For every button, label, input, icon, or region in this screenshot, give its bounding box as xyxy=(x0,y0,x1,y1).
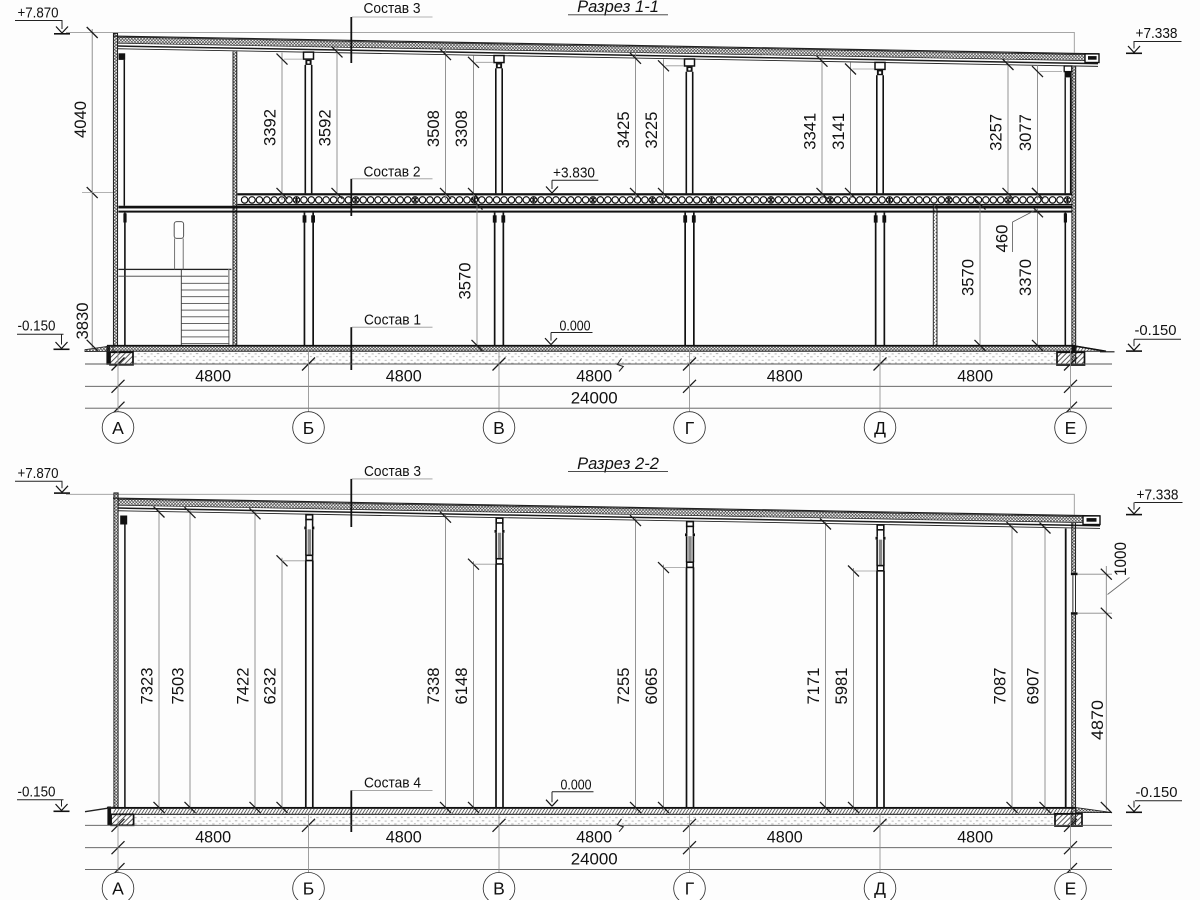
svg-text:4800: 4800 xyxy=(576,366,612,385)
svg-text:4800: 4800 xyxy=(957,827,993,846)
svg-text:Состав 3: Состав 3 xyxy=(364,0,421,17)
svg-text:7503: 7503 xyxy=(168,668,187,705)
svg-text:4800: 4800 xyxy=(195,827,231,846)
svg-text:7171: 7171 xyxy=(804,668,823,705)
svg-text:Е: Е xyxy=(1065,879,1077,899)
svg-text:4800: 4800 xyxy=(767,366,803,385)
svg-text:3077: 3077 xyxy=(1016,114,1035,151)
svg-text:Состав 2: Состав 2 xyxy=(364,163,421,180)
svg-text:3257: 3257 xyxy=(986,114,1005,151)
svg-text:3830: 3830 xyxy=(73,303,92,340)
svg-text:Состав 4: Состав 4 xyxy=(364,774,421,791)
svg-text:24000: 24000 xyxy=(571,388,618,407)
svg-text:-0.150: -0.150 xyxy=(18,319,56,335)
svg-text:Д: Д xyxy=(874,879,886,899)
svg-text:24000: 24000 xyxy=(571,850,618,869)
svg-text:-0.150: -0.150 xyxy=(1136,785,1178,801)
svg-text:4800: 4800 xyxy=(576,827,612,846)
svg-text:1000: 1000 xyxy=(1111,542,1130,576)
svg-text:7338: 7338 xyxy=(424,668,443,705)
svg-text:3508: 3508 xyxy=(424,110,443,147)
svg-text:3225: 3225 xyxy=(642,112,661,149)
svg-text:А: А xyxy=(112,879,124,899)
svg-text:+3.830: +3.830 xyxy=(553,165,595,181)
svg-text:Д: Д xyxy=(874,418,886,438)
svg-text:Б: Б xyxy=(303,879,314,899)
svg-text:+7.870: +7.870 xyxy=(18,6,59,22)
svg-text:3308: 3308 xyxy=(452,110,471,147)
svg-text:3570: 3570 xyxy=(958,259,977,296)
svg-text:Б: Б xyxy=(303,418,314,438)
svg-text:4800: 4800 xyxy=(386,366,422,385)
svg-text:6907: 6907 xyxy=(1023,668,1042,705)
svg-text:Г: Г xyxy=(685,418,695,438)
svg-text:Разрез 1-1: Разрез 1-1 xyxy=(577,0,659,16)
svg-text:3392: 3392 xyxy=(260,109,279,146)
svg-text:3341: 3341 xyxy=(800,113,819,150)
svg-text:460: 460 xyxy=(992,225,1011,253)
svg-text:В: В xyxy=(493,879,505,899)
svg-text:Г: Г xyxy=(685,879,695,899)
svg-text:6148: 6148 xyxy=(452,668,471,705)
svg-text:3570: 3570 xyxy=(455,263,474,300)
svg-text:3425: 3425 xyxy=(614,111,633,148)
svg-text:+7.338: +7.338 xyxy=(1137,488,1179,504)
svg-text:+7.870: +7.870 xyxy=(18,466,59,482)
svg-text:Состав 1: Состав 1 xyxy=(364,311,421,328)
svg-text:В: В xyxy=(493,418,505,438)
svg-text:5981: 5981 xyxy=(832,668,851,705)
svg-text:4800: 4800 xyxy=(957,366,993,385)
svg-text:-0.150: -0.150 xyxy=(1135,323,1177,339)
svg-text:3141: 3141 xyxy=(829,113,848,150)
svg-text:Разрез 2-2: Разрез 2-2 xyxy=(577,455,659,473)
svg-text:6065: 6065 xyxy=(642,668,661,705)
svg-text:А: А xyxy=(112,418,124,438)
svg-text:+7.338: +7.338 xyxy=(1136,26,1178,42)
svg-text:7087: 7087 xyxy=(990,668,1009,705)
svg-text:4800: 4800 xyxy=(195,366,231,385)
svg-text:Состав 3: Состав 3 xyxy=(364,463,421,480)
svg-text:4800: 4800 xyxy=(767,827,803,846)
svg-text:7323: 7323 xyxy=(137,668,156,705)
svg-text:0.000: 0.000 xyxy=(561,778,592,794)
svg-text:Е: Е xyxy=(1065,418,1077,438)
svg-text:3370: 3370 xyxy=(1016,259,1035,296)
svg-text:4800: 4800 xyxy=(386,827,422,846)
svg-text:3592: 3592 xyxy=(315,109,334,146)
svg-text:-0.150: -0.150 xyxy=(18,785,56,801)
svg-text:7255: 7255 xyxy=(614,668,633,705)
svg-text:4040: 4040 xyxy=(71,101,90,138)
svg-text:7422: 7422 xyxy=(233,668,252,705)
svg-text:6232: 6232 xyxy=(260,668,279,705)
svg-text:4870: 4870 xyxy=(1088,700,1107,740)
